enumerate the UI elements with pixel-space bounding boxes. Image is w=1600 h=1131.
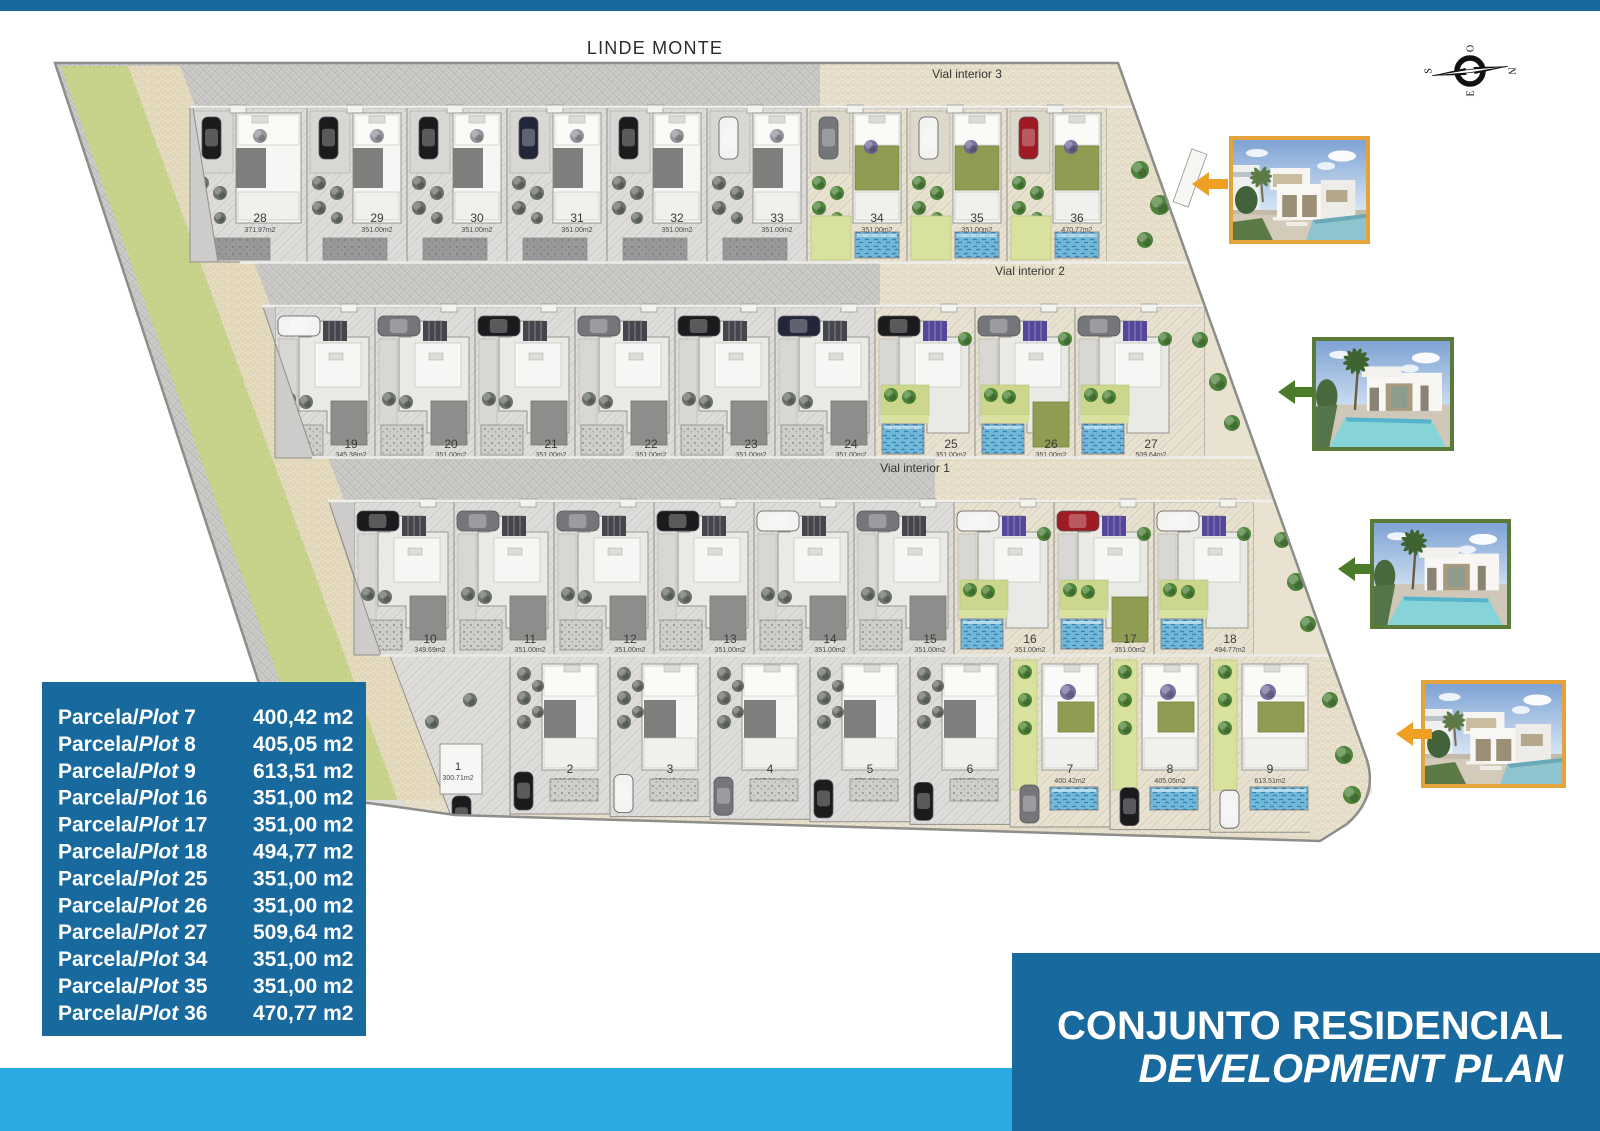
svg-text:6: 6 bbox=[967, 762, 974, 776]
svg-text:N: N bbox=[1506, 67, 1517, 74]
svg-text:Parcela/Plot 35: Parcela/Plot 35 bbox=[58, 975, 208, 998]
svg-text:LINDE MONTE: LINDE MONTE bbox=[587, 38, 723, 58]
svg-text:23: 23 bbox=[744, 437, 758, 451]
svg-text:Parcela/Plot 17: Parcela/Plot 17 bbox=[58, 814, 207, 837]
svg-text:351,00 m2: 351,00 m2 bbox=[253, 814, 353, 837]
svg-text:Parcela/Plot 27: Parcela/Plot 27 bbox=[58, 921, 207, 944]
svg-text:10: 10 bbox=[423, 632, 437, 646]
svg-text:2: 2 bbox=[567, 762, 574, 776]
svg-text:CONJUNTO RESIDENCIAL: CONJUNTO RESIDENCIAL bbox=[1057, 1004, 1563, 1048]
svg-text:Parcela/Plot 8: Parcela/Plot 8 bbox=[58, 733, 196, 756]
svg-text:19: 19 bbox=[344, 437, 358, 451]
svg-text:7: 7 bbox=[1067, 762, 1074, 776]
svg-text:21: 21 bbox=[544, 437, 558, 451]
svg-text:470,77 m2: 470,77 m2 bbox=[253, 1002, 353, 1025]
svg-text:16: 16 bbox=[1023, 632, 1037, 646]
svg-text:20: 20 bbox=[444, 437, 458, 451]
svg-text:31: 31 bbox=[570, 211, 584, 225]
svg-text:9: 9 bbox=[1267, 762, 1274, 776]
svg-text:351.00m2: 351.00m2 bbox=[514, 647, 545, 654]
svg-text:30: 30 bbox=[470, 211, 484, 225]
svg-text:351,00 m2: 351,00 m2 bbox=[253, 787, 353, 810]
svg-text:28: 28 bbox=[253, 211, 267, 225]
svg-text:494.77m2: 494.77m2 bbox=[1214, 647, 1245, 654]
svg-text:405,05 m2: 405,05 m2 bbox=[253, 733, 353, 756]
svg-text:4: 4 bbox=[767, 762, 774, 776]
svg-text:O: O bbox=[1464, 45, 1475, 52]
svg-text:351.00m2: 351.00m2 bbox=[1014, 647, 1045, 654]
svg-text:Parcela/Plot 34: Parcela/Plot 34 bbox=[58, 948, 208, 971]
svg-text:Parcela/Plot 36: Parcela/Plot 36 bbox=[58, 1002, 207, 1025]
svg-text:351.00m2: 351.00m2 bbox=[761, 227, 792, 234]
svg-text:351.00m2: 351.00m2 bbox=[461, 227, 492, 234]
svg-text:17: 17 bbox=[1123, 632, 1137, 646]
svg-text:351.00m2: 351.00m2 bbox=[661, 227, 692, 234]
svg-text:400,42 m2: 400,42 m2 bbox=[253, 706, 353, 729]
svg-text:22: 22 bbox=[644, 437, 658, 451]
svg-text:Vial interior 1: Vial interior 1 bbox=[880, 461, 950, 475]
svg-text:Parcela/Plot 26: Parcela/Plot 26 bbox=[58, 894, 207, 917]
svg-text:351.00m2: 351.00m2 bbox=[614, 647, 645, 654]
svg-text:351.00m2: 351.00m2 bbox=[714, 647, 745, 654]
svg-text:29: 29 bbox=[370, 211, 384, 225]
svg-text:351.00m2: 351.00m2 bbox=[814, 647, 845, 654]
svg-text:300.71m2: 300.71m2 bbox=[442, 775, 473, 782]
svg-text:Vial interior 2: Vial interior 2 bbox=[995, 264, 1065, 278]
svg-text:351.00m2: 351.00m2 bbox=[561, 227, 592, 234]
svg-text:15: 15 bbox=[923, 632, 937, 646]
svg-text:24: 24 bbox=[844, 437, 858, 451]
svg-text:405.05m2: 405.05m2 bbox=[1154, 778, 1185, 785]
svg-text:400.42m2: 400.42m2 bbox=[1054, 778, 1085, 785]
svg-text:12: 12 bbox=[623, 632, 637, 646]
svg-text:351,00 m2: 351,00 m2 bbox=[253, 948, 353, 971]
svg-text:Parcela/Plot 9: Parcela/Plot 9 bbox=[58, 760, 196, 783]
svg-text:351.00m2: 351.00m2 bbox=[1114, 647, 1145, 654]
svg-text:349.69m2: 349.69m2 bbox=[414, 647, 445, 654]
svg-text:351,00 m2: 351,00 m2 bbox=[253, 894, 353, 917]
svg-text:11: 11 bbox=[524, 632, 537, 646]
svg-text:35: 35 bbox=[970, 211, 984, 225]
svg-text:S: S bbox=[1424, 68, 1435, 74]
svg-text:Parcela/Plot 25: Parcela/Plot 25 bbox=[58, 867, 208, 890]
svg-text:25: 25 bbox=[944, 437, 958, 451]
svg-text:1: 1 bbox=[455, 761, 461, 773]
svg-text:613,51 m2: 613,51 m2 bbox=[253, 760, 353, 783]
svg-text:351,00 m2: 351,00 m2 bbox=[253, 867, 353, 890]
svg-text:3: 3 bbox=[667, 762, 674, 776]
svg-text:494,77 m2: 494,77 m2 bbox=[253, 841, 353, 864]
svg-text:Parcela/Plot 18: Parcela/Plot 18 bbox=[58, 841, 208, 864]
svg-text:5: 5 bbox=[867, 762, 874, 776]
svg-text:509,64 m2: 509,64 m2 bbox=[253, 921, 353, 944]
svg-text:DEVELOPMENT PLAN: DEVELOPMENT PLAN bbox=[1139, 1047, 1565, 1091]
svg-text:26: 26 bbox=[1044, 437, 1058, 451]
svg-text:18: 18 bbox=[1223, 632, 1237, 646]
svg-text:Vial interior 3: Vial interior 3 bbox=[932, 67, 1002, 81]
svg-text:Parcela/Plot 16: Parcela/Plot 16 bbox=[58, 787, 207, 810]
svg-text:27: 27 bbox=[1144, 437, 1158, 451]
svg-text:E: E bbox=[1466, 90, 1477, 96]
svg-text:14: 14 bbox=[823, 632, 837, 646]
svg-text:32: 32 bbox=[670, 211, 684, 225]
svg-text:34: 34 bbox=[870, 211, 884, 225]
svg-text:13: 13 bbox=[723, 632, 737, 646]
svg-text:351,00 m2: 351,00 m2 bbox=[253, 975, 353, 998]
svg-text:8: 8 bbox=[1167, 762, 1174, 776]
svg-text:33: 33 bbox=[770, 211, 784, 225]
svg-text:371.97m2: 371.97m2 bbox=[244, 227, 275, 234]
svg-text:613.51m2: 613.51m2 bbox=[1254, 778, 1285, 785]
svg-text:Parcela/Plot 7: Parcela/Plot 7 bbox=[58, 706, 196, 729]
svg-text:351.00m2: 351.00m2 bbox=[361, 227, 392, 234]
svg-text:351.00m2: 351.00m2 bbox=[914, 647, 945, 654]
svg-text:36: 36 bbox=[1070, 211, 1084, 225]
